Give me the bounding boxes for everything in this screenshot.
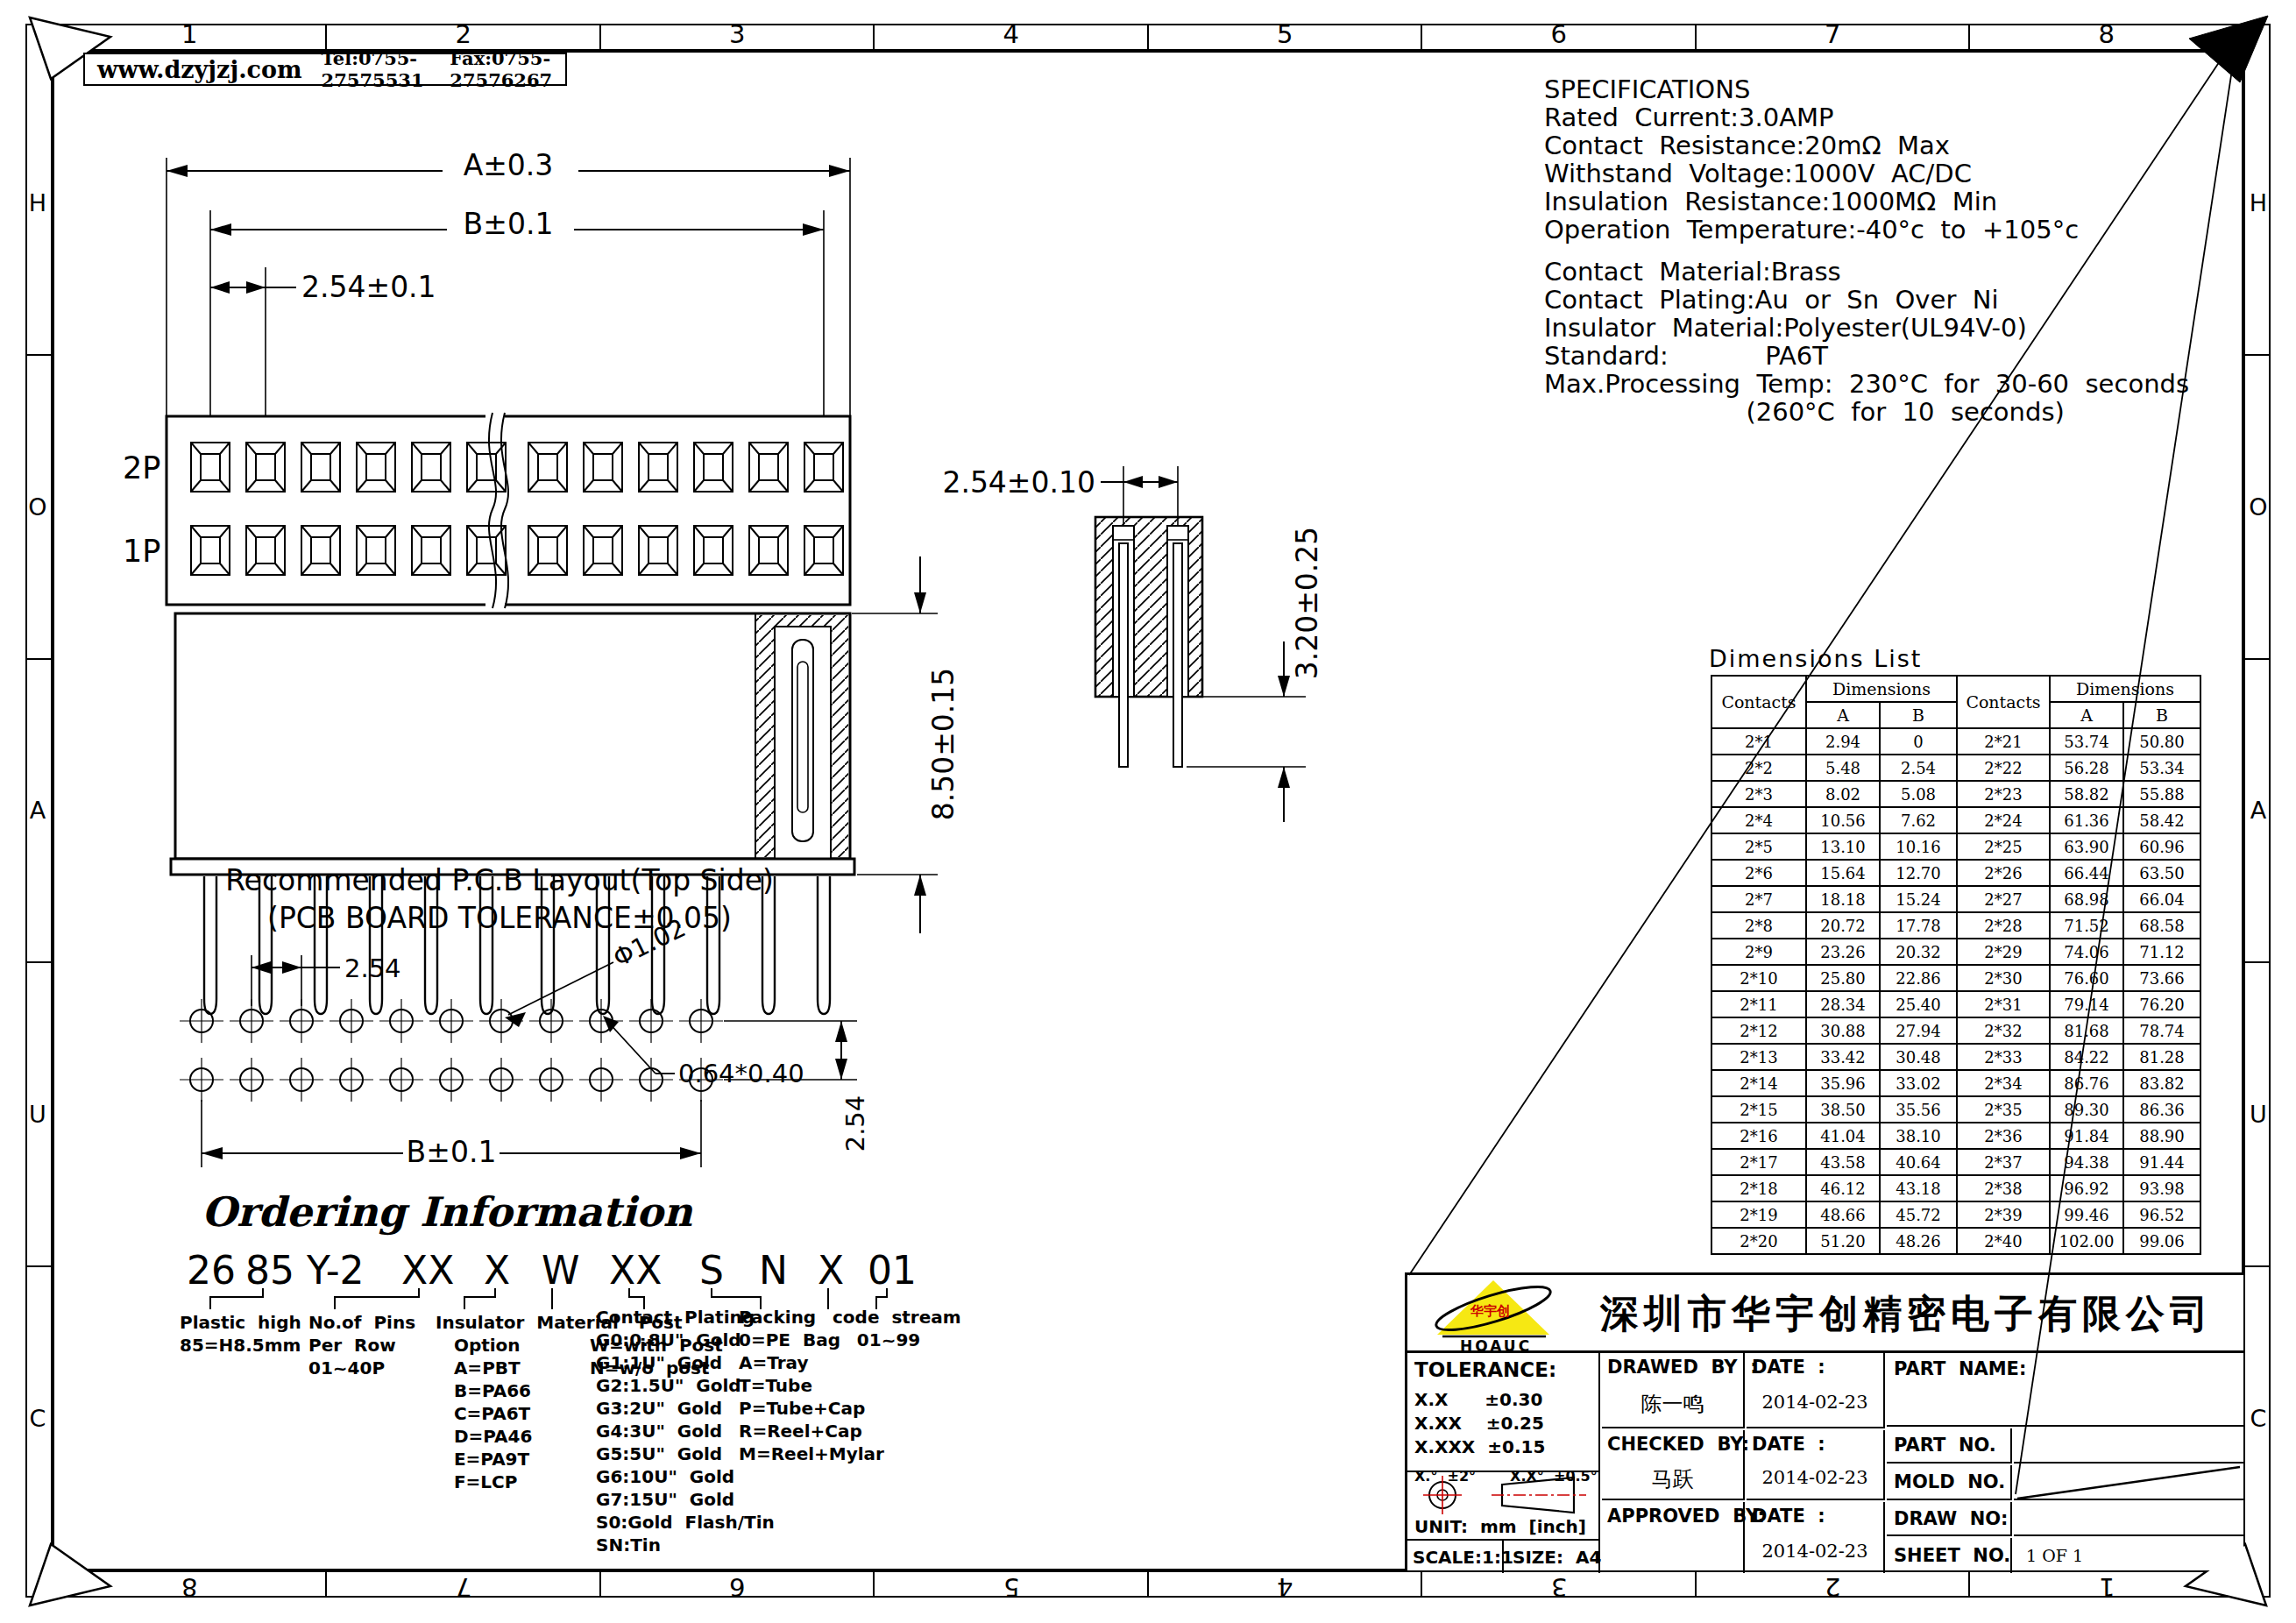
logo-text: HOAUC [1460, 1337, 1532, 1355]
pcb-span-label: B±0.1 [407, 1135, 497, 1169]
table-row: 2*410.567.622*2461.3658.42 [1711, 807, 2200, 833]
table-row: 2*820.7217.782*2871.5268.58 [1711, 912, 2200, 939]
company-logo: 华宇创 HOAUC [1416, 1277, 1574, 1352]
mold-no-value [2014, 1465, 2243, 1500]
code-seg-packing: X [818, 1248, 844, 1293]
text-line: 4 [1148, 1574, 1422, 1600]
text-line: G6:10U" Gold [596, 1465, 775, 1488]
pcb-layout-drawing: 2.54 Φ1.02 B±0.1 2.54 [123, 929, 999, 1218]
table-row: 2*2051.2048.262*40102.0099.06 [1711, 1228, 2200, 1254]
target-symbol-icon [1423, 1476, 1462, 1514]
text-line: C=PA6T [436, 1402, 619, 1425]
col-header-dimensions-right: Dimensions [2050, 676, 2200, 702]
dimensions-list-title: Dimensions List [1709, 645, 1922, 672]
draw-no-value [2014, 1502, 2243, 1536]
text-line: R=Reel+Cap [739, 1420, 884, 1442]
tolerance-title: TOLERANCE: [1414, 1358, 1591, 1381]
text-line: Standard: PA6T [1544, 342, 2189, 370]
col-header-b-right: B [2123, 702, 2200, 728]
table-row: 2*38.025.082*2358.8255.88 [1711, 781, 2200, 807]
ordering-col-plastic: Plastic high85=H8.5mm [180, 1311, 301, 1357]
text-line: B=PA66 [436, 1379, 619, 1402]
text-line: 6 [1422, 21, 1697, 47]
date-label-3: DATE : [1752, 1506, 1878, 1527]
table-row: 2*1128.3425.402*3179.1476.20 [1711, 991, 2200, 1017]
code-seg-s: S [699, 1248, 724, 1293]
text-line: A [25, 659, 51, 963]
size-label: SIZE: A4 [1513, 1547, 1601, 1568]
frame-letters-left: HOAUC [25, 51, 51, 1570]
code-seg-post: W [542, 1248, 580, 1293]
text-line: 5 [1148, 21, 1422, 47]
text-line: Contact Material:Brass [1544, 258, 2189, 286]
date-value-3: 2014-02-23 [1752, 1541, 1878, 1562]
text-line: A [2245, 659, 2271, 963]
text-line: O [25, 355, 51, 659]
text-line [1544, 244, 2189, 258]
text-line: 7 [1696, 21, 1970, 47]
date-label-2: DATE : [1752, 1434, 1878, 1455]
col-header-dimensions-left: Dimensions [1806, 676, 1957, 702]
dim-a-label: A±0.3 [464, 148, 554, 182]
text-line: A=Tray [739, 1351, 884, 1374]
logo-cn-text: 华宇创 [1470, 1303, 1510, 1319]
table-row: 2*1948.6645.722*3999.4696.52 [1711, 1201, 2200, 1228]
code-seg-material: X [484, 1248, 510, 1293]
text-line: SN:Tin [596, 1534, 775, 1556]
text-line: Plastic high [180, 1311, 301, 1334]
frame-numbers-bottom: 87654321 [53, 1574, 2243, 1600]
section-view-drawing: 2.54±0.10 3.20±0.25 [929, 412, 1446, 841]
text-line: Withstand Voltage:1000V AC/DC [1544, 159, 2189, 188]
text-line: O [2245, 355, 2271, 659]
code-seg-series: 26 [187, 1248, 236, 1293]
text-line: 8 [53, 1574, 327, 1600]
sheet-no-value: 1 OF 1 [2014, 1538, 2243, 1573]
table-row: 2*513.1010.162*2563.9060.96 [1711, 833, 2200, 860]
text-line: F=LCP [436, 1471, 619, 1493]
dimensions-table-body: 2*12.9402*2153.7450.802*25.482.542*2256.… [1711, 728, 2200, 1254]
table-row: 2*615.6412.702*2666.4463.50 [1711, 860, 2200, 886]
text-line: 1 [1970, 1574, 2244, 1600]
website-text: www.dzyjzj.com [97, 56, 302, 83]
text-line: 2 [327, 21, 601, 47]
text-line: X.X ±0.30 [1414, 1388, 1591, 1412]
specifications-block: SPECIFICATIONSRated Current:3.0AMPContac… [1544, 75, 2189, 426]
text-line: C [2245, 1266, 2271, 1570]
text-line: P=Tube+Cap [739, 1397, 884, 1420]
table-row: 2*1846.1243.182*3896.9293.98 [1711, 1175, 2200, 1201]
drawed-by-value: 陈一鸣 [1607, 1390, 1738, 1418]
text-line: 4 [875, 21, 1149, 47]
cone-projection-icon [1492, 1478, 1586, 1513]
table-row: 2*1743.5840.642*3794.3891.44 [1711, 1149, 2200, 1175]
code-seg-stream: 01 [868, 1248, 917, 1293]
text-line: H [2245, 51, 2271, 355]
text-line: Contact Resistance:20mΩ Max [1544, 131, 2189, 159]
text-line: E=PA9T [436, 1448, 619, 1471]
text-line: 8 [1970, 21, 2244, 47]
fax-text: Fax:0755-27576267 [450, 47, 565, 91]
checked-by-value: 马跃 [1607, 1465, 1738, 1493]
date-label-1: DATE : [1752, 1357, 1878, 1378]
text-line: 1 [53, 21, 327, 47]
text-line: 5 [875, 1574, 1149, 1600]
row2-label: 2P [123, 450, 160, 485]
table-row: 2*718.1815.242*2768.9866.04 [1711, 886, 2200, 912]
company-name: 深圳市华宇创精密电子有限公司 [1574, 1275, 2240, 1353]
dim-b-label: B±0.1 [464, 207, 554, 241]
pcb-pitch-label: 2.54 [344, 953, 401, 983]
date-value-1: 2014-02-23 [1752, 1392, 1878, 1413]
col-header-a-right: A [2050, 702, 2123, 728]
text-line: Contact Plating:Au or Sn Over Ni [1544, 286, 2189, 314]
table-row: 2*1435.9633.022*3486.7683.82 [1711, 1070, 2200, 1096]
text-line: X.XXX ±0.15 [1414, 1435, 1591, 1459]
col-header-b-left: B [1880, 702, 1957, 728]
part-no-label: PART NO. [1894, 1435, 1996, 1456]
unit-label: UNIT: mm [inch] [1414, 1516, 1586, 1537]
text-line: U [2245, 962, 2271, 1266]
text-line: D=PA46 [436, 1425, 619, 1448]
text-line: No.of Pins [308, 1311, 415, 1334]
ordering-col-pins: No.of PinsPer Row01~40P [308, 1311, 415, 1379]
tel-text: Tel:0755-27575531 [322, 47, 435, 91]
text-line: Insulator Material:Polyester(UL94V-0) [1544, 314, 2189, 342]
text-line: 6 [600, 1574, 875, 1600]
table-row: 2*1538.5035.562*3589.3086.36 [1711, 1096, 2200, 1123]
frame-letters-right: HOAUC [2245, 51, 2271, 1570]
mold-no-label: MOLD NO. [1894, 1471, 2005, 1492]
table-row: 2*1333.4230.482*3384.2281.28 [1711, 1044, 2200, 1070]
text-line: G7:15U" Gold [596, 1488, 775, 1511]
text-line: Operation Temperature:-40°c to +105°c [1544, 216, 2189, 244]
text-line: code stream [833, 1306, 961, 1329]
table-row: 2*12.9402*2153.7450.80 [1711, 728, 2200, 755]
code-seg-type: Y-2 [307, 1248, 365, 1293]
part-name-label: PART NAME: [1894, 1358, 2236, 1379]
col-header-contacts-left: Contacts [1711, 676, 1806, 728]
text-line: 01~99 [833, 1329, 961, 1351]
text-line: X.XX ±0.25 [1414, 1412, 1591, 1435]
text-line: U [25, 962, 51, 1266]
top-view-drawing: A±0.3 B±0.1 2.54±0.1 2P 1P [96, 123, 903, 631]
frame-numbers-top: 12345678 [53, 21, 2243, 47]
sheet-no-label: SHEET NO. [1894, 1545, 2010, 1566]
section-tail-label: 3.20±0.25 [1290, 527, 1324, 680]
approved-by-label: APPROVED BY: [1607, 1506, 1738, 1527]
table-row: 2*1641.0438.102*3691.8488.90 [1711, 1123, 2200, 1149]
ordering-title: Ordering Information [184, 1188, 710, 1236]
code-seg-n: N [759, 1248, 788, 1293]
section-pitch-label: 2.54±0.10 [942, 465, 1095, 500]
text-line: C [25, 1266, 51, 1570]
projection-symbols [1407, 1472, 1600, 1516]
col-header-contacts-right: Contacts [1957, 676, 2050, 728]
code-seg-height: 85 [245, 1248, 294, 1293]
title-block: 华宇创 HOAUC 深圳市华宇创精密电子有限公司 TOLERANCE: X.X … [1405, 1272, 2243, 1570]
drawed-by-label: DRAWED BY : [1607, 1357, 1738, 1378]
text-line: SPECIFICATIONS [1544, 75, 2189, 103]
text-line: 3 [600, 21, 875, 47]
code-seg-pins: XX [401, 1248, 454, 1293]
ordering-col-stream: code stream 01~99 [833, 1306, 961, 1351]
code-seg-plating: XX [609, 1248, 662, 1293]
pcb-layout-title: Recommended P.C.B Layout(Top Side) [140, 863, 859, 897]
tolerance-rows: X.X ±0.30X.XX ±0.25X.XXX ±0.15 [1414, 1388, 1591, 1459]
engineering-drawing-sheet: 12345678 87654321 HOAUC HOAUC www.dzyjzj… [0, 0, 2296, 1623]
text-line: (260°C for 10 seconds) [1544, 398, 2189, 426]
text-line: H [25, 51, 51, 355]
text-line: S0:Gold Flash/Tin [596, 1511, 775, 1534]
dimensions-list-table: Contacts Dimensions Contacts Dimensions … [1711, 675, 2201, 1255]
scale-label: SCALE:1:1 [1413, 1547, 1513, 1568]
text-line: Insulation Resistance:1000MΩ Min [1544, 188, 2189, 216]
text-line: 2 [1696, 1574, 1970, 1600]
text-line: 01~40P [308, 1357, 415, 1379]
text-line: T=Tube [739, 1374, 884, 1397]
checked-by-label: CHECKED BY: [1607, 1434, 1738, 1455]
table-row: 2*25.482.542*2256.2853.34 [1711, 755, 2200, 781]
text-line: Rated Current:3.0AMP [1544, 103, 2189, 131]
draw-no-label: DRAW NO: [1894, 1508, 2009, 1529]
text-line: 3 [1422, 1574, 1697, 1600]
contact-header-box: www.dzyjzj.com Tel:0755-27575531 Fax:075… [83, 53, 567, 86]
text-line: Per Row [308, 1334, 415, 1357]
pcb-row-label: 2.54 [840, 1095, 870, 1152]
table-row: 2*1025.8022.862*3076.6073.66 [1711, 965, 2200, 991]
table-row: 2*1230.8827.942*3281.6878.74 [1711, 1017, 2200, 1044]
dim-pitch-label: 2.54±0.1 [301, 270, 436, 304]
text-line: 85=H8.5mm [180, 1334, 301, 1357]
text-line: 7 [327, 1574, 601, 1600]
col-header-a-left: A [1806, 702, 1880, 728]
date-value-2: 2014-02-23 [1752, 1467, 1878, 1488]
text-line: Max.Processing Temp: 230°C for 30-60 sec… [1544, 370, 2189, 398]
text-line: M=Reel+Mylar [739, 1442, 884, 1465]
part-no-value [2014, 1428, 2243, 1464]
table-row: 2*923.2620.322*2974.0671.12 [1711, 939, 2200, 965]
